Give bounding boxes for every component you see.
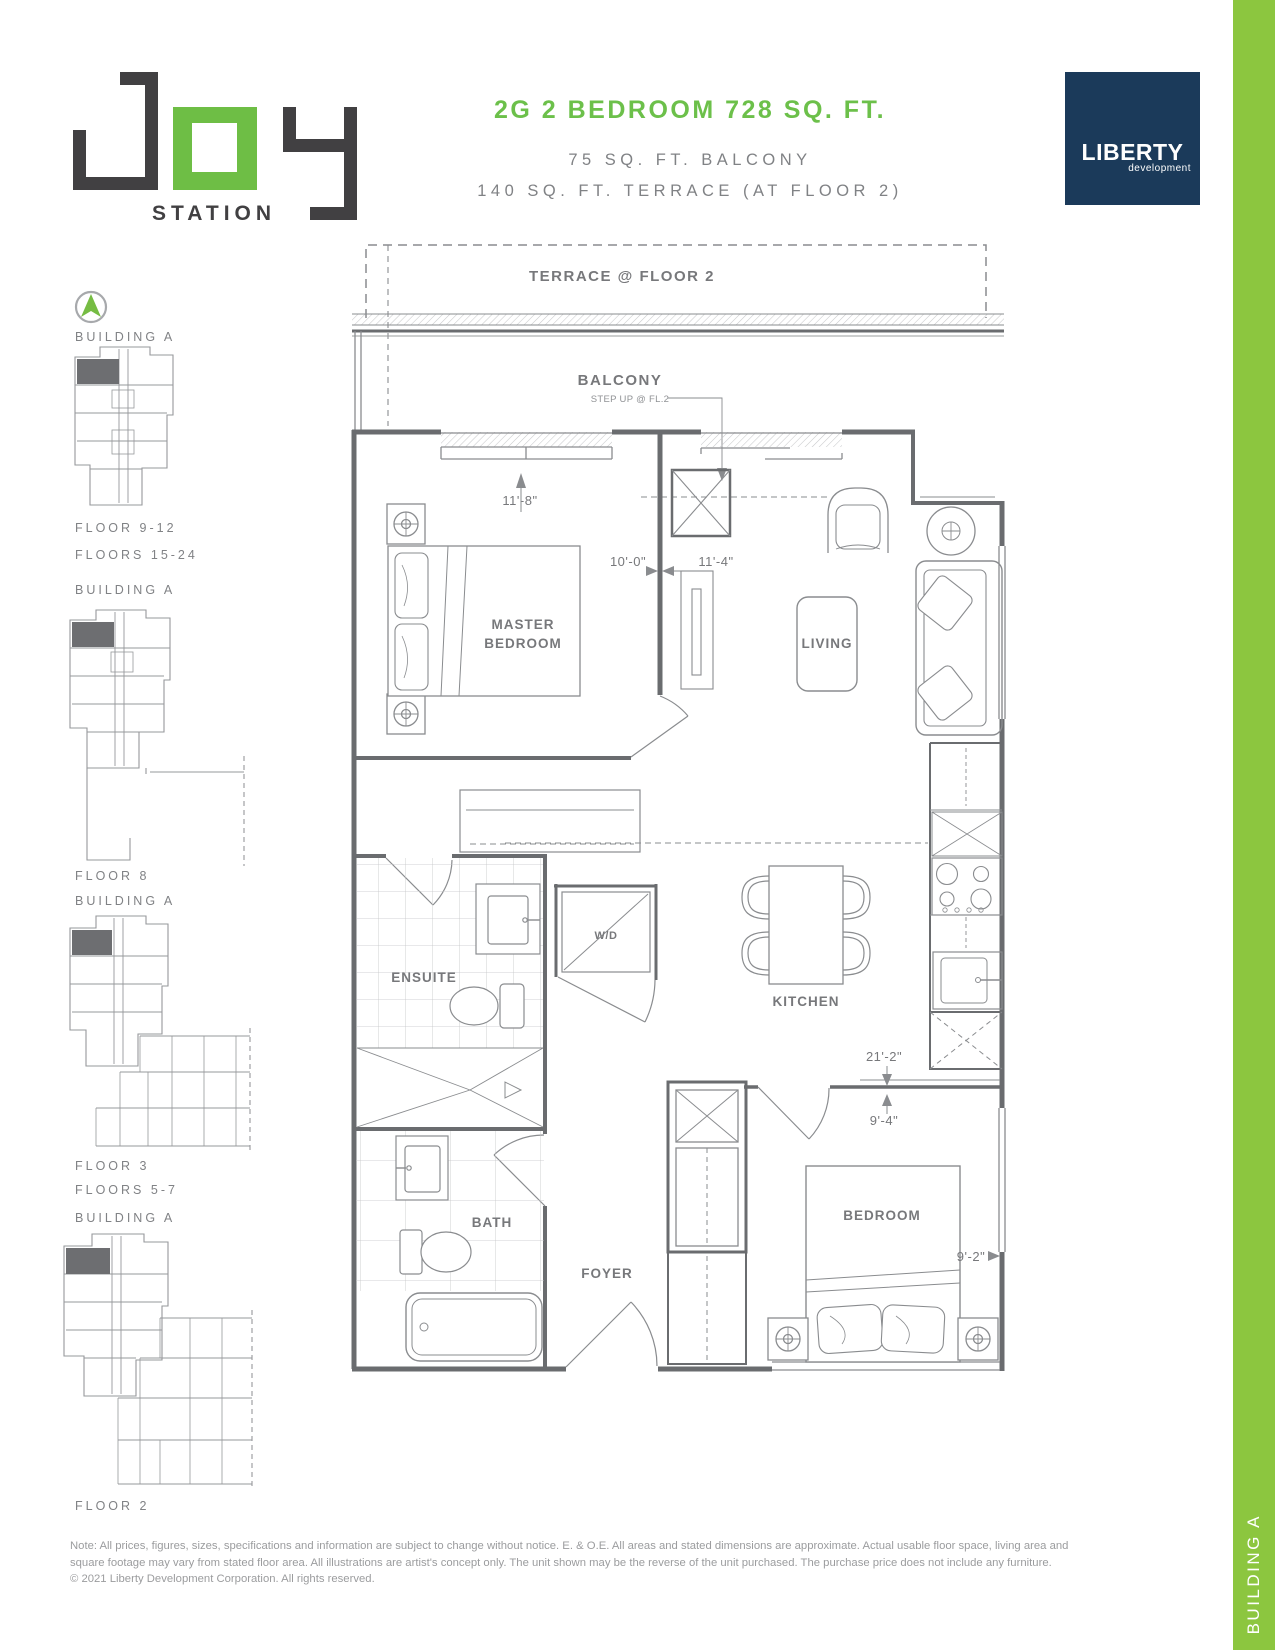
keyplan-floors-3-7 <box>70 916 250 1152</box>
keyplan-column <box>60 270 295 1515</box>
floorplan-sheet: STATION 2G 2 BEDROOM 728 SQ. FT. 75 SQ. … <box>0 0 1275 1650</box>
logo-letter-y <box>283 107 357 220</box>
keyplan-unit-highlight <box>72 930 112 955</box>
liberty-name: LIBERTY <box>1082 142 1184 162</box>
master-bedroom-label-2: BEDROOM <box>484 636 562 651</box>
foyer-label: FOYER <box>581 1266 633 1281</box>
balcony-slab <box>352 314 1004 430</box>
keyplan-floor-8 <box>70 610 244 866</box>
living-furniture <box>672 470 1002 735</box>
kitchen-label: KITCHEN <box>773 994 840 1009</box>
disclaimer-line-1: Note: All prices, figures, sizes, specif… <box>70 1538 1160 1555</box>
dim-bedroom-depth: 9'-4" <box>870 1113 898 1128</box>
bath-fixtures <box>356 1131 544 1361</box>
bedroom-label: BEDROOM <box>843 1208 921 1223</box>
dim-living-width: 11'-4" <box>698 554 733 569</box>
bedroom-furniture <box>768 1166 998 1362</box>
disclaimer: Note: All prices, figures, sizes, specif… <box>70 1538 1160 1588</box>
building-side-tab: BUILDING A <box>1233 0 1275 1650</box>
ensuite-label: ENSUITE <box>391 970 457 985</box>
logo-station-text: STATION <box>152 202 276 225</box>
ensuite-fixtures <box>357 858 543 1127</box>
joy-station-logo: STATION <box>70 62 370 227</box>
keyplan-floor-2 <box>64 1234 252 1490</box>
floor-plan: TERRACE @ FLOOR 2 BALCONY STEP UP @ FL.2 <box>340 225 1012 1380</box>
balcony-subtitle: 75 SQ. FT. BALCONY <box>400 151 980 170</box>
liberty-sub: development <box>1128 163 1191 174</box>
keyplan-floors-9-24 <box>75 347 173 505</box>
dim-master-depth: 10'-0" <box>610 554 646 569</box>
master-bedroom-label-1: MASTER <box>492 617 555 632</box>
unit-title: 2G 2 BEDROOM 728 SQ. FT. <box>400 96 980 125</box>
terrace-subtitle: 140 SQ. FT. TERRACE (AT FLOOR 2) <box>400 182 980 201</box>
logo-letter-o-hole <box>192 123 237 172</box>
wd-label: W/D <box>595 930 618 942</box>
logo-letter-j <box>73 72 158 190</box>
foyer-closet-column <box>668 1082 746 1364</box>
kitchen-furniture <box>505 743 1002 1069</box>
disclaimer-line-3: © 2021 Liberty Development Corporation. … <box>70 1571 1160 1588</box>
living-label: LIVING <box>801 636 852 651</box>
keyplan-unit-highlight <box>66 1248 110 1274</box>
liberty-logo: LIBERTY development <box>1065 72 1200 205</box>
bath-label: BATH <box>472 1215 513 1230</box>
north-compass-icon <box>76 292 106 322</box>
step-up-note: STEP UP @ FL.2 <box>591 394 669 405</box>
terrace-label: TERRACE @ FLOOR 2 <box>529 268 715 285</box>
building-side-tab-label: BUILDING A <box>1244 1514 1264 1634</box>
disclaimer-line-2: square footage may vary from stated floo… <box>70 1555 1160 1572</box>
dim-bedroom-width: 9'-2" <box>957 1249 985 1264</box>
dim-master-width: 11'-8" <box>502 493 537 508</box>
keyplan-unit-highlight <box>77 359 119 384</box>
keyplan-unit-highlight <box>72 622 114 647</box>
balcony-label: BALCONY <box>578 372 663 389</box>
dim-unit-length: 21'-2" <box>866 1049 902 1064</box>
